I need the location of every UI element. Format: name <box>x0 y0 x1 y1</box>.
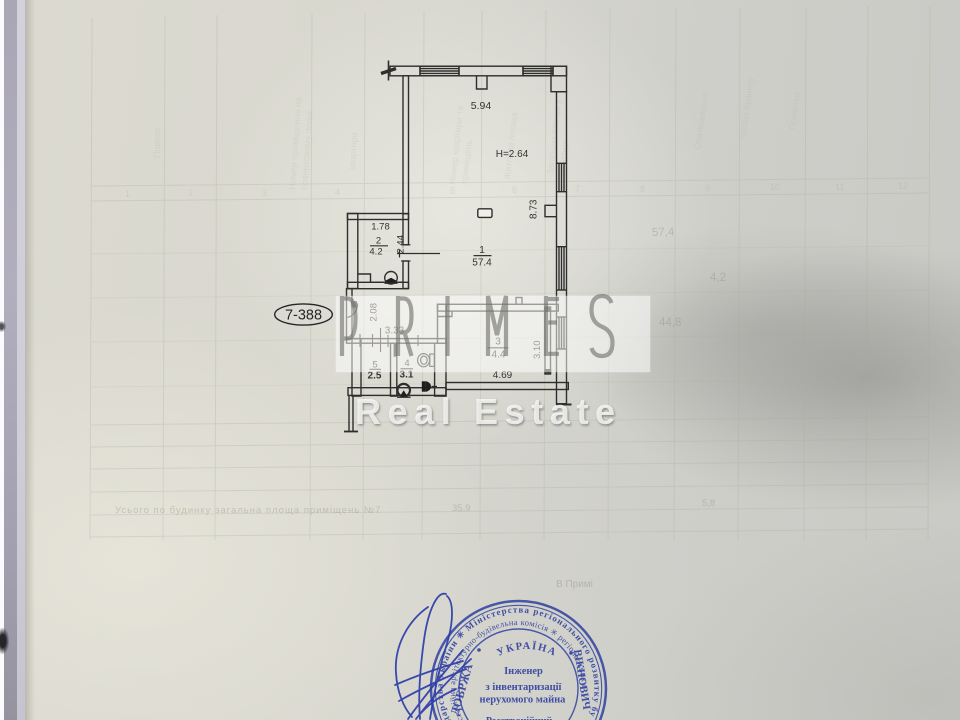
svg-text:7-388: 7-388 <box>285 308 322 324</box>
svg-text:8.73: 8.73 <box>529 199 540 219</box>
svg-text:2: 2 <box>376 236 381 247</box>
svg-text:2.44: 2.44 <box>396 235 407 254</box>
svg-text:57.4: 57.4 <box>472 258 492 269</box>
svg-text:5.94: 5.94 <box>471 100 492 112</box>
svg-text:1: 1 <box>479 245 485 256</box>
svg-text:H=2.64: H=2.64 <box>496 149 529 160</box>
svg-text:1.78: 1.78 <box>371 222 390 233</box>
svg-text:4.2: 4.2 <box>369 247 382 258</box>
